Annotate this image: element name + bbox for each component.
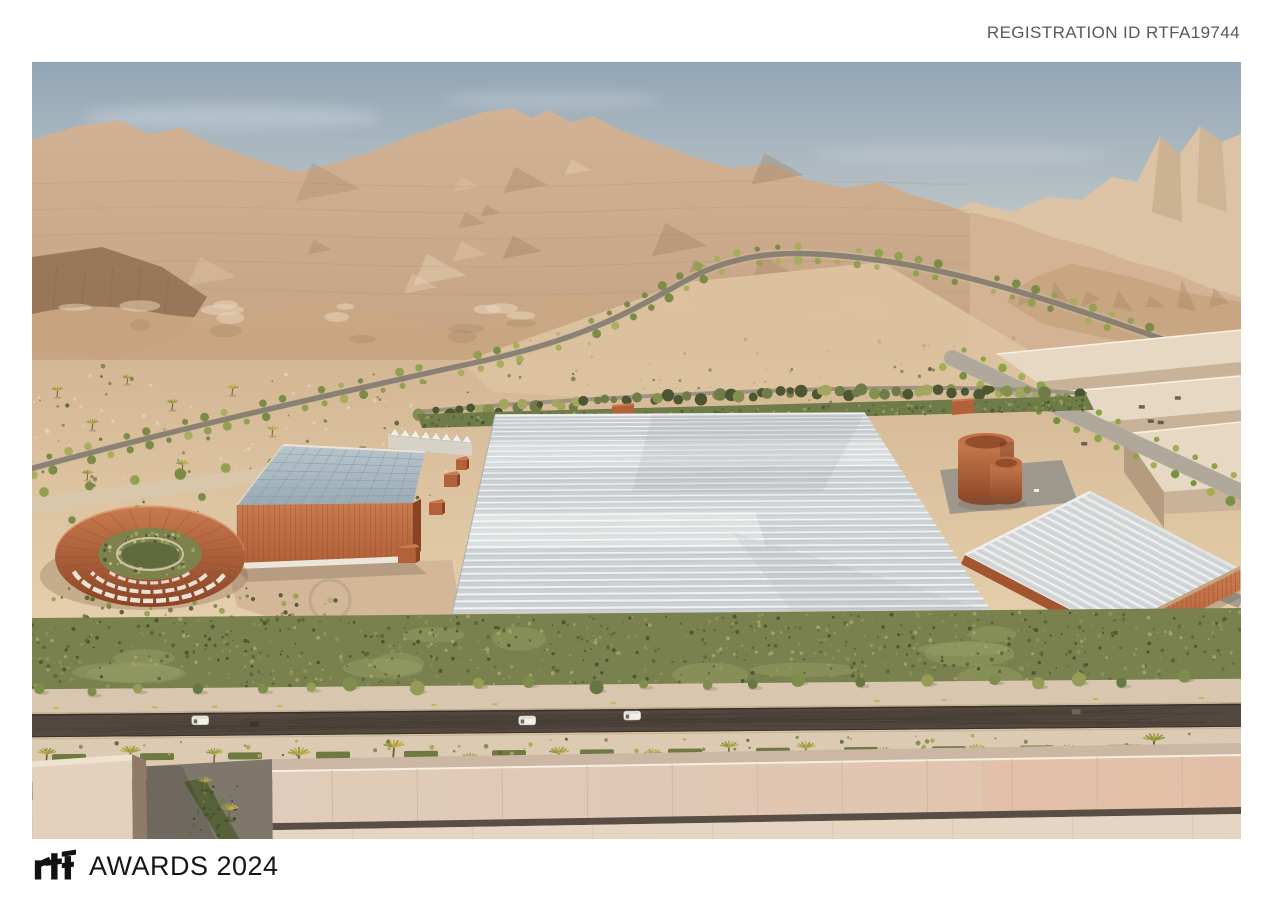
foreground <box>32 669 1241 839</box>
architectural-render <box>32 62 1241 839</box>
registration-id: REGISTRATION ID RTFA19744 <box>987 23 1240 43</box>
footer: AWARDS 2024 <box>32 846 279 886</box>
awards-title: AWARDS 2024 <box>89 846 279 886</box>
rtf-logo-icon <box>32 847 76 885</box>
render-scene <box>32 62 1241 839</box>
